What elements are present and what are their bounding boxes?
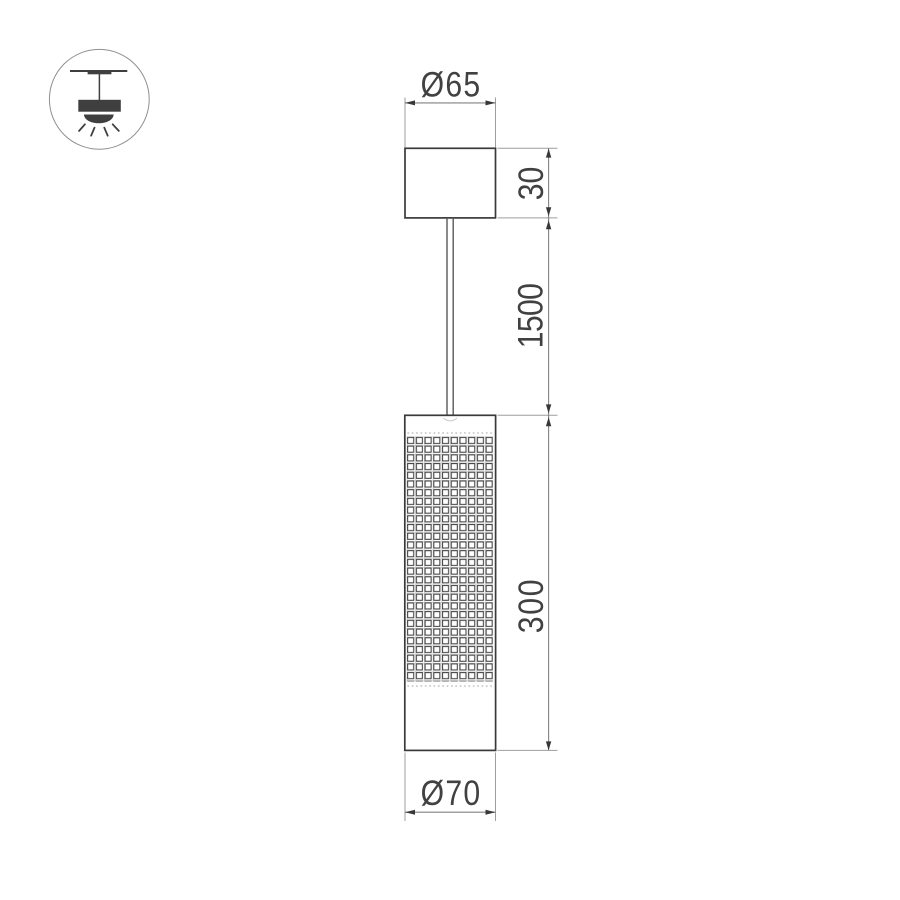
svg-text:30: 30 bbox=[511, 167, 551, 201]
svg-text:Ø70: Ø70 bbox=[421, 773, 482, 813]
svg-text:300: 300 bbox=[511, 578, 551, 633]
svg-text:1500: 1500 bbox=[510, 283, 550, 348]
svg-text:Ø65: Ø65 bbox=[421, 64, 482, 104]
